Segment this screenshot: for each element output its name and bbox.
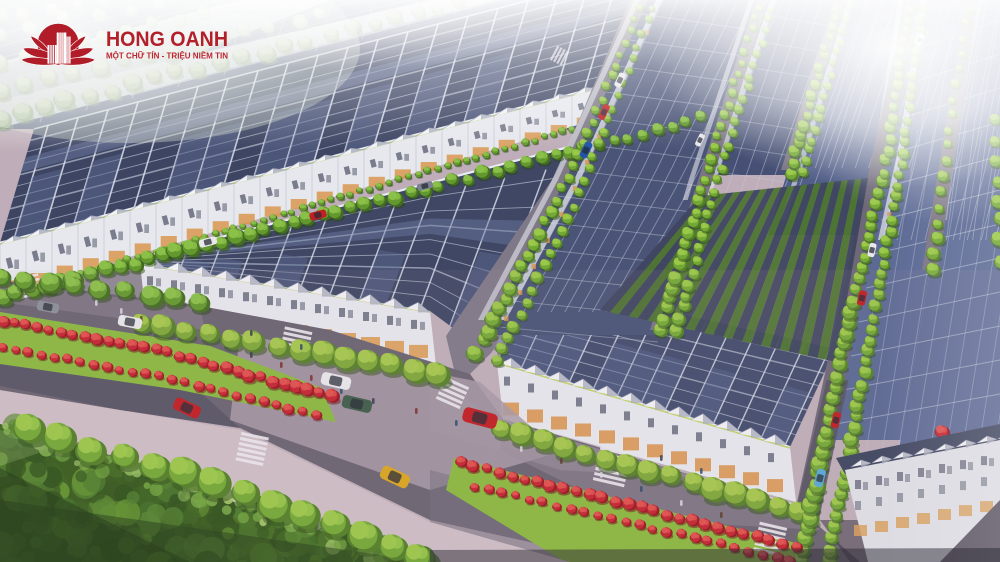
svg-text:HONG OANH: HONG OANH — [106, 27, 228, 51]
svg-text:MỘT CHỮ TÍN - TRIỆU NIỀM TIN: MỘT CHỮ TÍN - TRIỆU NIỀM TIN — [106, 50, 228, 61]
